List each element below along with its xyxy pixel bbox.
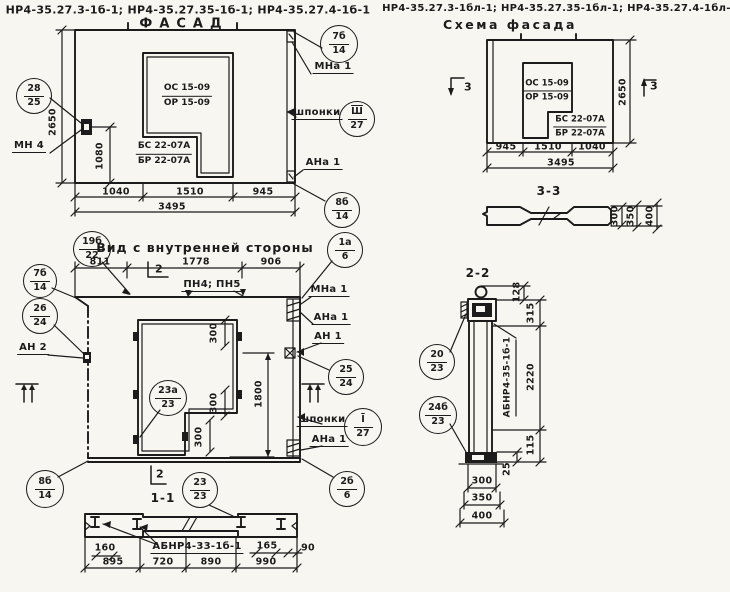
callout-25-24: 2524 — [328, 359, 364, 395]
label-ab-nr4-35: АБНР4-35-1б-1 — [504, 337, 513, 418]
dim-s22-128: 128 — [512, 282, 522, 303]
callout-19b-22: 19б22 — [73, 231, 111, 267]
dim-schema-1040: 1040 — [578, 142, 606, 152]
dim-s22-2220: 2220 — [526, 363, 536, 391]
title-right-codes: НР4-35.27.3-1бл-1; НР4-35.27.35-1бл-1; Н… — [382, 4, 730, 14]
stamp-os-or-schema: ОС 15-09 ОР 15-09 — [523, 78, 571, 103]
dim-s11-890: 890 — [201, 557, 222, 567]
dim-s22-115: 115 — [526, 435, 536, 456]
callout-7b-14-facade: 7б14 — [320, 25, 358, 63]
label-ana1-inner: АНа 1 — [312, 313, 351, 325]
dim-s33-350: 350 — [626, 206, 636, 227]
callout-28-25: 2825 — [16, 78, 52, 114]
label-mna1-facade: МНа 1 — [312, 62, 353, 74]
drawing-sheet: НР4-35.27.3-1б-1; НР4-35.27.35-1б-1; НР4… — [0, 0, 730, 592]
dim-s22-300: 300 — [472, 476, 493, 486]
callout-8b-14-facade: 8б14 — [324, 192, 360, 228]
callout-26-24: 2624 — [22, 298, 58, 334]
dim-s11-90: 90 — [301, 543, 315, 553]
dim-schema-1510: 1510 — [534, 142, 562, 152]
dim-facade-945: 945 — [253, 187, 274, 197]
stamp-bs-br-schema: БС 22-07А БР 22-07А — [553, 114, 606, 139]
dim-inner-300-top: 300 — [209, 323, 219, 344]
label-pn4-pn5: ПН4; ПН5 — [181, 280, 242, 292]
dim-inner-1800: 1800 — [254, 380, 264, 408]
dim-s33-400: 400 — [645, 206, 655, 227]
dim-inner-1778: 1778 — [182, 257, 210, 267]
title-schema-view: Схема фасада — [443, 19, 577, 32]
callout-23a-23: 23а23 — [149, 380, 187, 416]
section-mark-3-right: 3 — [650, 81, 658, 92]
label-shponki-facade: шпонки — [292, 108, 343, 120]
callout-23-23: 2323 — [182, 472, 218, 508]
label-shponki-inner: шпонки — [297, 415, 348, 427]
dim-s11-160: 160 — [95, 543, 116, 553]
callout-20-23: 2023 — [419, 344, 455, 380]
label-ana1-inner-lower: АНа 1 — [310, 435, 349, 447]
callout-8b-14-inner: 8б14 — [26, 470, 64, 508]
dim-schema-945: 945 — [496, 142, 517, 152]
dim-facade-3495: 3495 — [158, 202, 186, 212]
dim-facade-1510: 1510 — [176, 187, 204, 197]
dim-s11-720: 720 — [153, 557, 174, 567]
dim-s11-990: 990 — [256, 557, 277, 567]
title-section-1-1: 1-1 — [151, 492, 176, 504]
dim-inner-906: 906 — [261, 257, 282, 267]
title-facade-view: ФАСАД — [139, 18, 228, 31]
stamp-os-or-facade: ОС 15-09 ОР 15-09 — [162, 83, 212, 109]
dim-s11-165: 165 — [257, 541, 278, 551]
callout-1a-6: 1а6 — [327, 232, 363, 268]
dim-s22-350: 350 — [472, 493, 493, 503]
title-section-2-2: 2-2 — [466, 267, 491, 279]
label-ab-nr4-33: АБНР4-33-1б-1 — [150, 542, 243, 554]
callout-sh-27-facade: Ш27 — [339, 101, 375, 137]
title-left-codes: НР4-35.27.3-1б-1; НР4-35.27.35-1б-1; НР4… — [6, 5, 371, 16]
dim-s22-25: 25 — [502, 462, 512, 476]
dim-facade-1040: 1040 — [102, 187, 130, 197]
label-an1: АН 1 — [312, 332, 344, 344]
dim-schema-2650: 2650 — [618, 78, 628, 106]
callout-i-27: I27 — [344, 408, 382, 446]
callout-7b-14-inner: 7б14 — [23, 264, 57, 298]
label-mn4: МН 4 — [12, 141, 46, 153]
dim-s22-400: 400 — [472, 511, 493, 521]
section-mark-2-top: 2 — [155, 264, 163, 275]
label-an2: АН 2 — [17, 343, 49, 355]
dim-s33-300: 300 — [610, 206, 620, 227]
title-section-3-3: 3-3 — [537, 185, 562, 197]
title-inner-view: Вид с внутренней стороны — [96, 242, 313, 255]
dim-inner-300-mid: 300 — [209, 393, 219, 414]
section-mark-3-left: 3 — [464, 82, 472, 93]
label-ana1-facade: АНа 1 — [304, 158, 343, 170]
dim-facade-2650: 2650 — [48, 108, 58, 136]
dim-s22-315: 315 — [526, 303, 536, 324]
section-mark-2-bottom: 2 — [156, 469, 164, 480]
stamp-bs-br-facade: БС 22-07А БР 22-07А — [136, 141, 192, 167]
callout-2b-6: 2б6 — [329, 471, 365, 507]
callout-24b-23: 24б23 — [419, 396, 457, 434]
dim-facade-1080: 1080 — [95, 142, 105, 170]
inner-view-linework — [16, 261, 333, 484]
dim-inner-300-bottom: 300 — [194, 427, 204, 448]
dim-schema-3495: 3495 — [547, 158, 575, 168]
label-mna1-inner: МНа 1 — [308, 285, 349, 297]
dim-s11-895: 895 — [103, 557, 124, 567]
